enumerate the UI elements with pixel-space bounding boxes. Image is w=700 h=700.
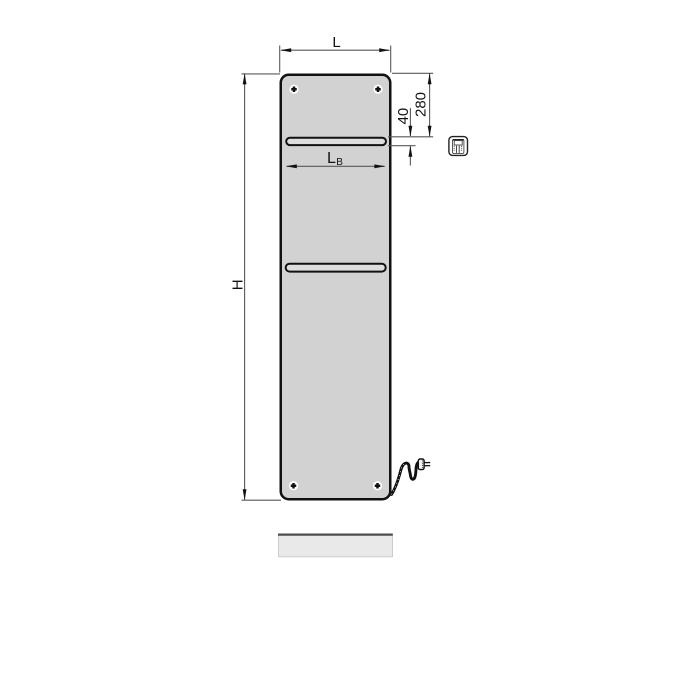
svg-text:H: H xyxy=(230,279,247,290)
svg-text:B: B xyxy=(336,157,343,168)
svg-text:40: 40 xyxy=(395,108,412,125)
svg-text:L: L xyxy=(327,150,336,167)
svg-text:L: L xyxy=(332,34,340,51)
svg-text:280: 280 xyxy=(413,92,430,117)
